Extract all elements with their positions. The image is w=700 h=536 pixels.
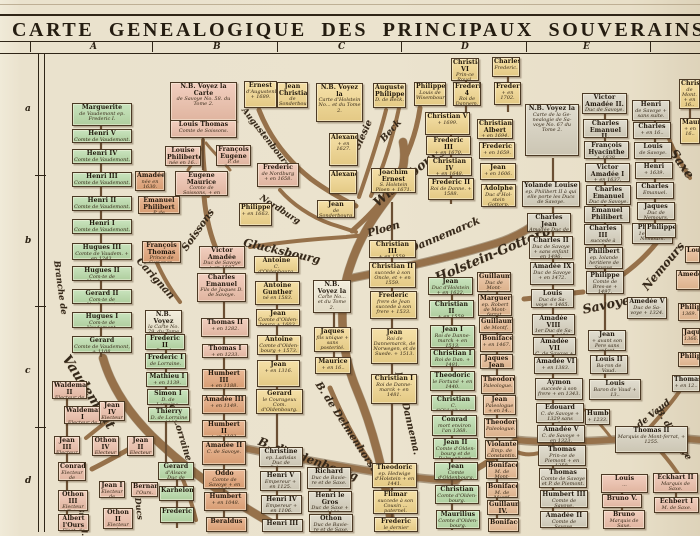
person-detail: la Carte No. 79. du Tome 2. — [147, 325, 180, 333]
person-detail: + 1639. — [637, 171, 671, 176]
person-box: Louis... — [601, 474, 648, 493]
person-box: Frederic+ en 1702. — [494, 82, 521, 105]
person-detail: Duc d'Hol-stein Gottorp. — [483, 193, 514, 207]
person-detail: 1er Duc de Sa-voye + 1451. — [534, 329, 573, 335]
person-box: Hugues ICom-te de Vaudemont. — [72, 312, 132, 328]
person-box: Guillaume IV. — [487, 500, 519, 515]
person-detail: Carte d'Holstein No... et du Tome 2. — [318, 98, 361, 114]
person-detail: C. de Savoye. — [204, 450, 244, 455]
person-detail: D. de Lorraine + 1115. — [150, 416, 188, 422]
person-detail: Paleologue. — [486, 427, 515, 432]
person-detail: 1366. — [684, 337, 698, 342]
person-box: Humbert II+ en 1103. — [202, 420, 246, 437]
person-detail: + en 16.. — [317, 366, 349, 371]
person-detail: M. de Montf. — [488, 491, 516, 498]
person-detail: Electeur de Brande. — [129, 451, 152, 456]
person-detail: Com-te de Vaudemont. — [74, 275, 130, 281]
person-box: Christian V+ 1699. — [425, 112, 470, 135]
grid-letter-left: d — [25, 476, 31, 486]
person-box: Othon IIElecteur de Brande. — [103, 508, 133, 529]
person-detail: Comte de Savoye + en 1060. — [205, 478, 244, 489]
person-box: Hugues IICom-te de Vaudemont. — [72, 266, 132, 281]
person-detail: le Fortuné + en 1440. — [432, 380, 473, 391]
person-box: Theodoricep. Hedwige d'Holstein + en 144… — [372, 463, 417, 488]
person-box: N.B. Voyez la Cartede Savoye No. 58. du … — [170, 82, 237, 121]
person-detail: + en 1559. — [431, 315, 472, 318]
person-box: Frederic IIRoi de Danne. + 1588. — [428, 178, 474, 200]
person-box: ThierryD. de Lorraine + 1115. — [148, 407, 190, 422]
person-box: TheodorePaleologue. — [481, 375, 515, 394]
person-box: Louis ThomasComte de Soissons. — [170, 120, 237, 138]
person-detail: Roi de Dannemarck, de Norwegen, et de Su… — [373, 337, 416, 358]
person-box: Thomas IIMarquis de Mont-ferrat, + 1255. — [615, 426, 688, 453]
person-detail: Duc de Saxe + en 1101. — [310, 506, 350, 512]
person-detail: + en 16.. — [682, 127, 698, 138]
person-detail: ep. Robert de Mont-ferrat. — [480, 303, 510, 316]
person-box: Henri VEmpereur + en 1125. — [260, 471, 301, 491]
person-detail: Empereur + en 1125. — [262, 480, 299, 491]
person-box: Henri IComte de Vaudemont. — [72, 219, 132, 234]
person-box: GerardComte de Vaudemont, + 1108. — [72, 336, 132, 353]
person-detail: + en 1627. — [331, 142, 356, 153]
person-box: Lou... — [685, 246, 700, 263]
person-box: RichardDuc de Bavie-re et de Saxe. — [307, 467, 351, 489]
person-box: Jean IElecteur de Brand. — [99, 481, 125, 498]
person-detail: + en 1139. — [148, 381, 186, 386]
person-box: Philibertep. Iolande heritiere de Savoye… — [585, 247, 623, 269]
person-box: Waldemar IElecteur de Brande. — [64, 406, 101, 424]
person-detail: Roi de Danne-marck + en 1513. — [432, 334, 473, 348]
person-detail: succede à son Cousin ... paternel. — [375, 499, 416, 514]
person-box: Thomas I+ en 1233. — [202, 344, 248, 358]
person-box: Amadée VC. de Savoye + en 1323. — [537, 425, 585, 443]
person-box: Humbert IIIComte de Savoye. — [540, 490, 588, 508]
person-box: Amadée IIComte de Savoye. — [540, 511, 588, 528]
person-detail: C. de Savoye + 1391. — [535, 352, 574, 355]
person-box: Charles IIDuc de Savoye + sans enfant en… — [529, 236, 573, 259]
person-detail: succede à son Oncle, et + en 1559. — [371, 271, 414, 287]
person-detail: Roi de Dan. + 1481. — [432, 358, 473, 367]
person-detail: ep. Hedwige d'Holstein + en 1441. — [374, 472, 415, 488]
person-detail: Duc de Sa-voye + 1465. — [533, 298, 572, 308]
person-detail: Emp. de Constantin. — [487, 449, 516, 459]
person-box: Margueritede Vaudemont ep. Frederic I. — [72, 103, 132, 126]
person-box: Echbert IM. de Saxe. — [654, 497, 699, 513]
person-detail: de Savoye. — [636, 151, 670, 156]
person-box: Philippe — [645, 223, 676, 238]
person-box: Emanuel PhilibertP. de Carignan. — [138, 196, 180, 214]
person-box: Jean+ en 1606. — [480, 163, 516, 180]
person-box: Gerardle Courageux Com. d'Oldenbourg. — [256, 389, 303, 414]
person-detail: Electeur de Brande. — [66, 421, 99, 424]
person-detail: ep. Iolande heritiere de Savoye. — [587, 256, 621, 269]
person-box: JeanDuc d'Holstein + en 1622. — [428, 277, 473, 295]
person-detail: ep. Ladislas Duc de Pologne. — [261, 456, 301, 467]
person-box: Amadée IXDuc de Savoye + en 1472. — [530, 262, 574, 285]
person-detail: S. Holstein Ploen + 1671. — [373, 183, 414, 193]
person-box: Joachim ErnestS. Holstein Ploen + 1671. — [371, 168, 416, 193]
person-detail: Comte de Vaudemont. — [74, 228, 130, 233]
person-box: ConradElecteur de Brande. — [58, 462, 86, 481]
person-detail: Roi de Danne-marck + en 1481. — [373, 383, 415, 399]
person-detail: + en 1606. — [482, 172, 514, 177]
person-box: Margueriteep. Robert de Mont-ferrat. — [478, 294, 512, 316]
person-box: Henri VComte de Vaudemont. — [72, 129, 132, 143]
person-box: Fredericfrere de Jean succede à son frer… — [370, 291, 417, 319]
grid-letter-left: a — [25, 104, 31, 114]
person-box: Thomas II+ en 1282. — [201, 318, 249, 337]
person-detail: Comte de Savoye et P. de Piemont. — [541, 477, 585, 488]
person-box: Jean IIElecteur de Brande. — [127, 436, 154, 456]
person-box: Amadée VIII1er Duc de Sa-voye + 1451. — [532, 314, 575, 335]
person-box: Jean+ en 1316. — [257, 360, 300, 387]
person-box: Charles IIIsuccede à son frere. — [584, 224, 622, 245]
person-box: Louise Philibertenée en 16.. — [165, 146, 201, 166]
person-detail: + en 1103. — [204, 435, 244, 437]
person-box: Charles JeanAmadée Duc de Savoye + 1496. — [527, 213, 571, 232]
person-box: N.B. Voyez laCarte de la Ge-nealogie de … — [525, 104, 579, 156]
person-box: Guillaumede Montf. — [479, 317, 513, 333]
person-box: Henri IVComte de Vaudemont. — [72, 149, 132, 164]
person-detail: + en 1048. — [206, 501, 245, 506]
person-box: Louisde Savoye. — [634, 142, 672, 159]
person-box: Humbert+ 1233. — [585, 409, 610, 425]
person-detail: Louis de Wisembourg. — [416, 91, 444, 102]
person-detail: + 1233. — [587, 418, 608, 423]
person-detail: Comte de Vaudemont. — [74, 158, 130, 163]
person-box: Maurice+ en 16.. — [315, 357, 351, 374]
person-box: Mathieu I+ en 1139. — [146, 372, 188, 387]
person-box: Jean IRoi de Danne-marck + en 1513. — [430, 325, 475, 348]
grid-tick — [650, 42, 651, 52]
person-box: Gerard IICom-te de Vaudemont. — [72, 289, 132, 304]
person-detail: + en 1663. — [241, 212, 270, 217]
person-box: JeanComte d'Oldenbourg. — [434, 462, 478, 480]
person-box: François Hyacinthe+ 1638. — [584, 141, 629, 159]
grid-tick — [35, 175, 46, 176]
person-detail: Fils de Jaques D. de Savoye. — [199, 288, 244, 299]
person-box: Theodoricle Fortuné + en 1440. — [430, 371, 475, 391]
person-detail: Prin-ce de Piemont + en 1259. — [540, 454, 584, 466]
person-detail: Ba-ron de Vaud. — [592, 364, 626, 374]
person-box: Jaquesfils unique + sans posterité. — [314, 327, 351, 352]
person-box: AdolpheDuc d'Hol-stein Gottorp. — [481, 184, 516, 207]
person-name: Guillaume IV. — [489, 502, 517, 515]
person-box: JaquesDuc de Nemours. — [637, 202, 675, 220]
person-detail: + en 1670. — [428, 151, 469, 155]
person-name: Amedée — [678, 272, 698, 279]
person-detail: + en 1559. — [371, 255, 414, 258]
person-box: Henride Savoye + sans suite. — [632, 100, 670, 121]
person-box: Charles+ en 16.. — [633, 122, 671, 139]
person-box: N.B. Voyezla Carte No. 79. du Tome 2. — [145, 310, 182, 333]
grid-letter-top: C — [338, 42, 345, 52]
person-box: François ThomasPrince de Carignan. — [142, 241, 181, 263]
person-box: Gerardd'Alsace Duc de Lorraine. — [158, 462, 194, 480]
person-detail: Carte No... et du Tome 2. — [315, 295, 349, 311]
person-detail: M. de Mont-ferrat. — [488, 470, 516, 479]
person-detail: Paleologue + en 14.. — [485, 404, 514, 415]
person-box: Philippe — [678, 352, 700, 367]
person-box: Jean+ avant son Pere sans enfant. — [588, 330, 626, 351]
person-box: Humbert III+ en 1188. — [202, 369, 246, 389]
person-box: Eckhart IIMarquis de Saxe. — [653, 473, 698, 493]
person-box: Ernestd'Augustenb. + 1689. — [244, 81, 277, 108]
person-box: BonifaceM. de Montf. — [486, 482, 518, 498]
person-detail: Electeur de Brande. — [105, 523, 131, 529]
person-box: Boniface — [488, 518, 519, 532]
person-detail: Comte d'Olden-bourg + 1603. — [258, 318, 298, 326]
person-detail: Com-te de Vaudemont. — [74, 321, 130, 328]
person-detail: le Courageux Com. d'Oldenbourg. — [258, 398, 301, 414]
person-box: Jeande Sonderbourg. — [317, 200, 355, 218]
person-box: Christiande Mont. + en 16.. — [679, 79, 700, 109]
grid-tick — [35, 427, 46, 428]
person-box: Fredericde Nordburg + en 1658. — [257, 163, 299, 187]
person-box: Henri III — [262, 519, 303, 532]
person-detail: Comte d'Oldenbourg. — [436, 471, 476, 480]
person-box: ThomasPrin-ce de Piemont + en 1259. — [538, 445, 586, 466]
person-box: Amadée VIIC. de Savoye + 1391. — [533, 337, 576, 355]
person-box: Henri+ 1639. — [635, 162, 673, 179]
person-detail: née en 1630. — [137, 180, 163, 191]
person-name: Alexandre — [331, 172, 355, 179]
person-box: ViolanteEmp. de Constantin. — [485, 440, 518, 459]
person-box: Henri IVEmpereur + en 1106. — [261, 495, 302, 514]
person-detail: Roi de Dannem. — [455, 97, 479, 106]
person-detail: de Nordburg + en 1658. — [259, 172, 297, 183]
person-box: Antoine Guntherné en 1583. — [255, 281, 300, 305]
person-detail: Duc d'Holstein + en 1622. — [430, 286, 471, 295]
person-detail: C. d'Oldenbourg. — [256, 265, 297, 273]
person-box: Alexandre — [329, 170, 357, 194]
grid-letter-top: E — [583, 42, 590, 52]
person-box: ChristianC. d'Oldenbourg. — [431, 395, 476, 411]
person-detail: Comte de Vaudemont. — [74, 181, 130, 186]
person-detail: né en 1583. — [257, 296, 298, 301]
person-detail: + en 1637. — [587, 178, 628, 182]
person-box: Jaques1366. — [682, 328, 700, 345]
person-detail: de Sonderbourg. — [279, 97, 306, 108]
person-box: ThomasComte de Savoye et P. de Piemont. — [539, 468, 587, 488]
person-detail: Duc de Bavie-re et de Saxe. — [309, 476, 349, 487]
grid-letter-left: c — [25, 366, 30, 376]
person-box: Amadée VI+ en 1383. — [534, 357, 577, 374]
person-box: Frederic III+ en 1670. — [426, 136, 471, 155]
person-box: Christian IRoi de Dan. + 1481. — [430, 349, 475, 367]
person-box: LouisBaron de Vaud + 13.. — [589, 379, 641, 400]
person-box: LouisDuc de Sa-voye + 1465. — [531, 289, 574, 308]
person-box: Amedée — [676, 270, 700, 290]
person-detail: Duc de Sa-voye + 1324. — [629, 306, 665, 317]
grid-letter-top: D — [461, 42, 469, 52]
person-box: Christineep. Ladislas Duc de Pologne. — [259, 447, 303, 467]
person-detail: D. de Beck. — [375, 98, 404, 103]
person-detail: Comte d'Olden-bourg et de Delmenhorst. — [435, 447, 476, 459]
person-detail: Electeur de Brand. — [101, 416, 123, 421]
person-detail: + en 1316. — [259, 369, 298, 374]
grid-letter-top: A — [90, 42, 97, 52]
person-detail: Emanuel. — [638, 191, 672, 196]
person-box: Frederic IIDuc de Lorraine. — [145, 334, 185, 350]
person-box: Christian IIsuccede à son Oncle, et + en… — [369, 262, 416, 288]
person-name: Frederic — [162, 509, 192, 516]
person-name: Charles Emanuel II. — [585, 121, 626, 138]
person-detail: + en 16.. — [635, 131, 669, 136]
person-box: François EugeneP. de Savoye. — [216, 145, 251, 166]
person-box: Louis IIBa-ron de Vaud. — [590, 355, 628, 374]
person-detail: Prin-ce Royal. — [453, 73, 477, 81]
person-detail: + en 1383. — [536, 366, 575, 371]
person-detail: + en 1233. — [204, 353, 246, 358]
grid-letter-left: b — [25, 236, 31, 246]
person-detail: de Savoye No. 58. du Tome 2. — [172, 97, 235, 108]
person-detail: Duc de Savoye + en 1472. — [532, 271, 572, 282]
person-box: Amadée III+ en 1149. — [202, 395, 246, 414]
person-detail: Duc de Savoye. — [588, 200, 629, 205]
person-box: Boniface+ en 1467. — [480, 334, 513, 352]
person-box: Albert l'OursElect. de Brand. — [58, 514, 89, 531]
person-box: Beraldus — [206, 517, 247, 532]
person-name: Jaques Jean — [482, 356, 511, 369]
person-detail: Comte de Savoye. — [542, 520, 586, 528]
person-name: Boniface — [490, 520, 517, 527]
person-detail: Amadée Duc de Savoye + 1496. — [529, 228, 569, 232]
person-detail: Comte de Bres-se + 1497. — [588, 280, 622, 294]
grid-tick — [35, 306, 46, 307]
person-detail: Comte de Soissons. — [172, 129, 235, 134]
person-box: Alexandre+ en 1627. — [329, 133, 358, 166]
person-detail: succede à son frere + en 1343. — [537, 387, 581, 398]
person-detail: Electeur. — [56, 451, 78, 454]
person-detail: Comte de Vaudemont. — [74, 138, 130, 143]
person-box: Auguste PhilippeD. de Beck. — [373, 83, 406, 108]
person-detail: Electeur de Brand. — [94, 451, 117, 456]
person-detail: + en 1694. — [479, 134, 511, 139]
person-detail: + 1699. — [427, 121, 468, 126]
person-box: BrunoMarquis de Saxe. — [603, 510, 645, 529]
grid-letter-top: B — [213, 42, 221, 52]
person-box: Conradmort environ l'an 1368. — [432, 415, 477, 436]
person-detail: 1369. — [680, 312, 698, 317]
person-detail: Frederic. — [494, 66, 518, 71]
person-box: N.B. Voyez laCarte No... et du Tome 2. — [313, 280, 351, 313]
person-box: Othon IIIElecteur et Tuteur. — [58, 490, 88, 511]
person-detail: Roi de Danne. + 1588. — [430, 187, 472, 198]
person-box: Victor Amadée II.Duc de Savoye. — [582, 93, 627, 114]
person-detail: P. de Carignan. — [140, 211, 178, 214]
person-detail: Comte de Vaudemont, + 1108. — [74, 345, 130, 353]
person-detail: de Savoye + sans suite. — [634, 109, 668, 120]
person-detail: Duc de Nemours. — [639, 211, 673, 220]
person-name: Karhelon — [161, 488, 192, 495]
person-box: AntoineComte d'Olden-bourg + 1573. — [257, 335, 301, 355]
person-detail: Comte d'Olden-bourg. — [438, 519, 478, 529]
grid-tick — [30, 42, 31, 52]
person-detail: Carte de la Ge-nealogie de Sa-voye No. 6… — [527, 113, 577, 134]
person-box: OddoComte de Savoye + en 1060. — [203, 469, 246, 489]
person-detail: le dernier Prince. — [376, 526, 416, 532]
person-detail: mort environ l'an 1368. — [434, 424, 475, 435]
person-name: Bruno V. — [604, 496, 640, 503]
person-box: Maurice+ en 16.. — [680, 118, 700, 144]
person-box: BonifaceM. de Mont-ferrat. — [486, 461, 518, 479]
person-box: Simon ID. de Lorraine. — [147, 389, 189, 405]
grid-tick — [277, 42, 278, 52]
person-detail: Comte de Soissons, + en 1673. — [177, 186, 226, 196]
person-detail: de Mont. + en 16.. — [681, 88, 698, 109]
person-box: Jean IIIElecteur. — [54, 436, 80, 454]
person-detail: ep. Philibert II à qui elle porte les Du… — [524, 190, 578, 206]
person-name: Emanuel Philibert — [586, 208, 628, 221]
person-detail: succede à son frere. — [586, 239, 620, 245]
person-name: Philippe — [647, 225, 674, 232]
person-detail: C. d'Oldenbourg. — [433, 404, 474, 411]
person-detail: Electeur et Tuteur. — [60, 505, 86, 511]
person-detail: + en 1467. — [482, 343, 511, 348]
grid-tick — [526, 42, 527, 52]
person-detail: P. de Savoye. — [218, 160, 249, 166]
person-detail: Paleologue. — [483, 384, 513, 389]
person-detail: Marquis de Saxe. — [655, 482, 696, 493]
person-box: Othon IVElecteur de Brand. — [92, 436, 119, 456]
person-detail: frere de Jean succede à son frere + 1533… — [372, 300, 415, 316]
person-detail: + en 1149. — [204, 404, 244, 409]
person-name: Lou... — [687, 248, 698, 255]
person-box: Charles EmanuelFils de Jaques D. de Savo… — [197, 273, 246, 302]
person-box: Christian VIPrin-ce Royal. — [451, 58, 479, 81]
person-box: ChristianComte d'Olden-bourg. — [435, 485, 479, 504]
person-name: Philippe — [680, 354, 698, 361]
person-detail: D. de Lorraine. — [149, 398, 187, 405]
person-detail: ... — [603, 483, 646, 488]
person-box: Flimarsuccede à son Cousin ... paternel. — [373, 490, 418, 514]
person-detail: Com-te de Vaudemont. — [74, 298, 130, 304]
person-detail: Electeur de Brandebourg. — [54, 396, 85, 399]
grid-tick — [401, 42, 402, 52]
person-detail: Marquis de Saxe. — [605, 519, 643, 529]
person-detail: fils unique + sans posterité. — [316, 336, 349, 352]
person-detail: C. de Savoye + 1329 sans enfant. — [538, 412, 582, 423]
person-detail: Duc de Savoye. — [584, 108, 625, 113]
person-box: CharlesEmanuel. — [636, 182, 674, 199]
person-box: Amedée VDuc de Sa-voye + 1324. — [627, 297, 667, 319]
person-box: AntoineC. d'Oldenbourg. — [254, 256, 299, 273]
person-box: Bernardl'Ours. — [131, 482, 158, 497]
person-detail: Comte de Savoye. — [542, 499, 586, 508]
person-detail: Prince de Carignan. — [144, 256, 179, 263]
person-box: Charles EmanuelDuc de Savoye. — [586, 185, 631, 205]
person-detail: Duc de Bavie-re et de Saxe. — [311, 523, 351, 532]
person-box: Philippe+ en 1663. — [239, 203, 272, 226]
person-box: Fredericle dernier Prince. — [374, 517, 418, 532]
person-box: GuillaumeDuc de Mont-ferrat. — [477, 272, 511, 292]
person-detail: de Vaudemont ep. Frederic I. — [74, 112, 130, 123]
person-name: Beraldus — [208, 519, 245, 526]
genealogy-map: CARTE GENEALOGIQUE DES PRINCIPAUX SOUVER… — [0, 0, 700, 532]
person-detail: Comte de Vaudemont. — [74, 205, 130, 210]
person-box: Philippe1369. — [678, 303, 700, 321]
person-detail: de Sonderbourg. — [319, 209, 353, 218]
person-box: Karhelon — [159, 486, 194, 501]
person-box: Aymonsuccede à son frere + en 1343. — [535, 378, 583, 400]
person-detail: Duc de Savoye + sans enfant en 1496. — [531, 245, 571, 259]
person-box: PhilippeComte de Bres-se + 1497. — [586, 271, 624, 294]
person-name: Henri III — [264, 521, 301, 528]
person-box: Christian III+ en 1559. — [369, 240, 416, 258]
person-box: Frederic Ide Lorraine. — [145, 353, 186, 369]
person-box: CharlesFrederic. — [492, 57, 520, 77]
